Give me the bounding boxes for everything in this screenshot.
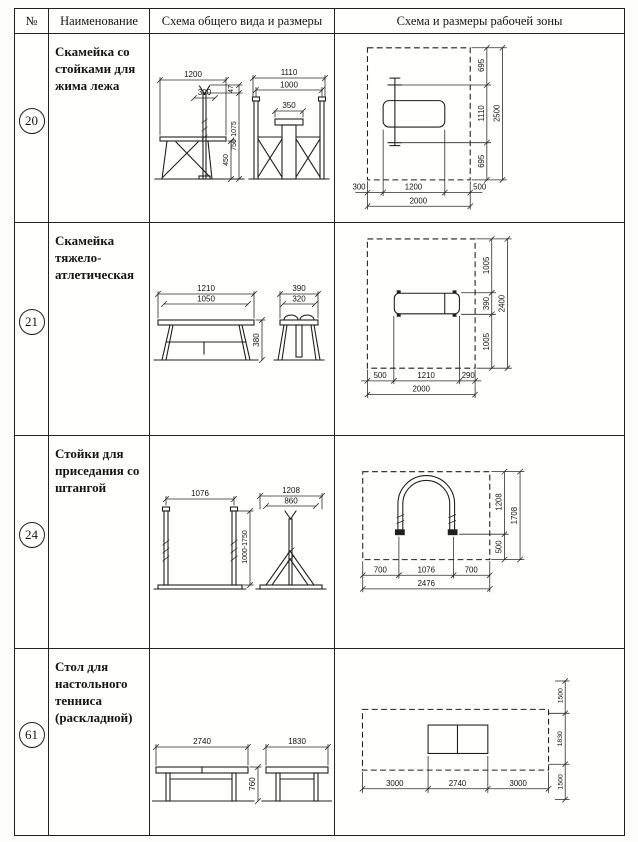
dim-label: 1208	[282, 486, 300, 495]
item-number-badge: 24	[19, 522, 45, 548]
dim-label: 700	[373, 565, 387, 574]
dim-label: 500	[473, 182, 487, 191]
item-name: Стол для настольного тенниса (раскладной…	[49, 649, 150, 835]
dim-label: 3000	[386, 779, 404, 788]
general-view-drawing-24: 1076 1000-1750 1208 860	[150, 436, 335, 649]
dim-label: 1076	[191, 489, 209, 498]
general-view-drawing-61: 2740 760 1830	[150, 649, 335, 835]
tennis-table-general-svg: 2740 760 1830	[152, 725, 332, 825]
dim-label: 390	[481, 296, 490, 310]
dim-label: 500	[373, 371, 387, 380]
item-number-badge: 61	[19, 722, 45, 748]
dim-label: 1210	[417, 371, 435, 380]
row-number-cell: 24	[15, 436, 49, 649]
tennis-table-zone-svg: 1500 1830 1500 3000 2740 3000	[338, 678, 622, 825]
work-zone-drawing-21: 1005 390 1005 2400 500 1210 290 2000	[335, 223, 624, 436]
work-zone-drawing-24: 1208 500 1708 700 1076 700 2476	[335, 436, 624, 649]
header-number: №	[15, 9, 49, 34]
header-name: Наименование	[49, 9, 150, 34]
dim-label: 320	[292, 295, 306, 304]
dim-label: 2740	[193, 737, 211, 746]
dim-label: 300	[352, 182, 366, 191]
squat-stands-zone-svg: 1208 500 1708 700 1076 700 2476	[338, 457, 622, 628]
dim-label: 750-1075	[231, 121, 238, 151]
weightlifting-bench-general-svg: 1210 1050 380 390 320	[152, 274, 332, 384]
equipment-table: № Наименование Схема общего вида и разме…	[14, 8, 625, 836]
item-name: Стойки для приседания со штангой	[49, 436, 150, 649]
dim-label: 2476	[417, 578, 434, 587]
dim-label: 1050	[197, 295, 215, 304]
dim-label: 3000	[509, 779, 527, 788]
dim-label: 1005	[481, 256, 490, 274]
dim-label: 380	[252, 333, 261, 347]
dim-label: 1208	[494, 493, 503, 510]
row-number-cell: 21	[15, 223, 49, 436]
dim-label: 1708	[510, 506, 519, 523]
squat-stands-general-svg: 1076 1000-1750 1208 860	[152, 475, 332, 610]
dim-label: 1830	[288, 737, 306, 746]
dim-label: 2400	[497, 294, 506, 312]
item-name: Скамейка тяжело-атлетическая	[49, 223, 150, 436]
dim-label: 695	[476, 58, 485, 72]
dim-label: 390	[292, 284, 306, 293]
dim-label: 1830	[557, 731, 564, 746]
dim-label: 500	[494, 539, 503, 553]
dim-label: 760	[248, 777, 257, 791]
item-number-badge: 20	[19, 108, 45, 134]
dim-label: 2000	[412, 385, 430, 394]
dim-label: 1200	[184, 70, 202, 79]
header-general-view: Схема общего вида и размеры	[150, 9, 335, 34]
dim-label: 695	[476, 154, 485, 168]
weightlifting-bench-zone-svg: 1005 390 1005 2400 500 1210 290 2000	[338, 231, 622, 427]
general-view-drawing-21: 1210 1050 380 390 320	[150, 223, 335, 436]
dim-label: 2740	[448, 779, 466, 788]
bench-press-general-svg: 1200 300 450 750-1075 47	[152, 61, 332, 196]
dim-label: 2000	[409, 196, 427, 205]
dim-label: 1076	[417, 565, 434, 574]
dim-label: 350	[282, 101, 296, 110]
header-work-zone: Схема и размеры рабочей зоны	[335, 9, 624, 34]
work-zone-drawing-61: 1500 1830 1500 3000 2740 3000	[335, 649, 624, 835]
dim-label: 290	[461, 371, 475, 380]
dim-label: 1000-1750	[242, 530, 249, 564]
dim-label: 1000	[280, 80, 298, 89]
dim-label: 860	[284, 496, 298, 505]
work-zone-drawing-20: 695 1110 695 2500 300 1200 500 2000	[335, 34, 624, 223]
dim-label: 47	[228, 85, 235, 93]
general-view-drawing-20: 1200 300 450 750-1075 47	[150, 34, 335, 223]
dim-label: 300	[198, 88, 212, 97]
dim-label: 2500	[492, 103, 501, 121]
item-name: Скамейка со стойками для жима лежа	[49, 34, 150, 223]
dim-label: 1500	[557, 688, 564, 703]
dim-label: 700	[464, 565, 478, 574]
row-number-cell: 20	[15, 34, 49, 223]
dim-label: 450	[223, 154, 230, 166]
dim-label: 1110	[476, 104, 485, 121]
dim-label: 1005	[481, 332, 490, 350]
bench-press-zone-svg: 695 1110 695 2500 300 1200 500 2000	[338, 38, 622, 219]
dim-label: 1200	[404, 182, 422, 191]
dim-label: 1110	[281, 68, 298, 77]
dim-label: 1500	[557, 774, 564, 789]
dim-label: 1210	[197, 284, 215, 293]
item-number-badge: 21	[19, 309, 45, 335]
row-number-cell: 61	[15, 649, 49, 835]
